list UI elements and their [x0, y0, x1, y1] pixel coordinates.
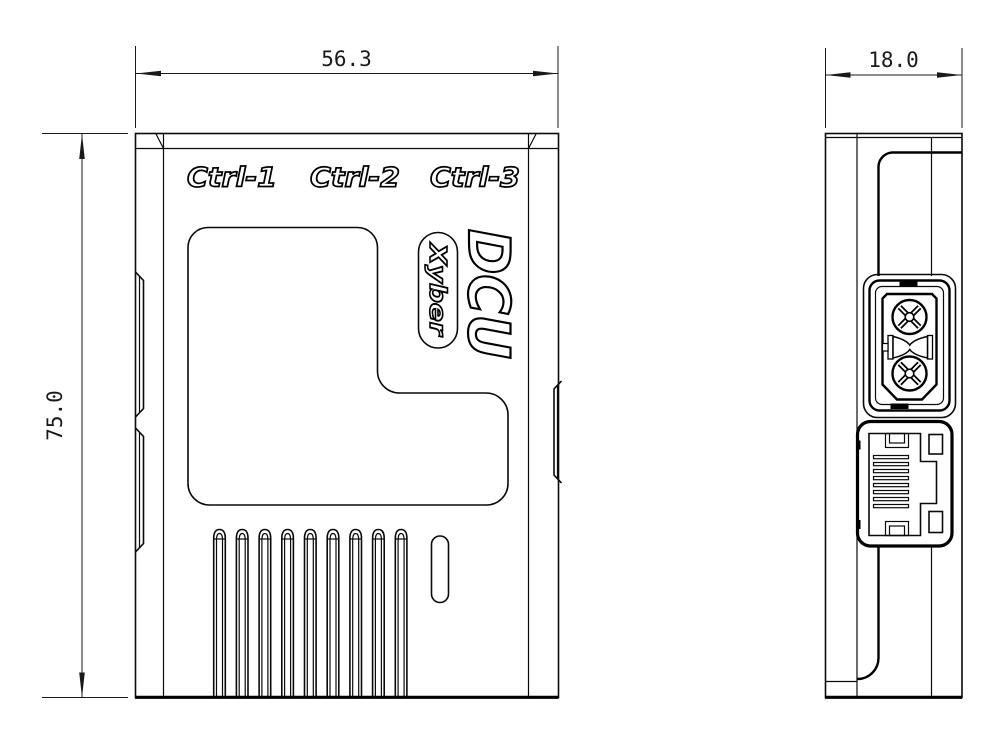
label-ctrl-2: Ctrl-2 [310, 163, 400, 194]
side-view [825, 134, 962, 698]
rj45-jack-outline [869, 434, 937, 536]
vent-slot [373, 530, 385, 698]
front-enclosure-outline [136, 134, 559, 698]
dim-text-height: 75.0 [43, 390, 67, 441]
product-logo-dcu: DCU [455, 229, 521, 359]
dim-arrow-left [136, 71, 161, 77]
vent-slot [395, 530, 407, 698]
rj45-ethernet-port [857, 422, 953, 547]
mounting-slot-oval [432, 536, 449, 603]
port-labels-row: Ctrl-1 Ctrl-2 Ctrl-3 [187, 163, 520, 194]
brand-badge-xyber: Xyber [419, 233, 458, 349]
dim-text-width: 56.3 [321, 47, 372, 71]
front-top-right-chamfer [529, 134, 537, 149]
xt30-top-key-mark [900, 282, 918, 287]
dim-arrow-bottom [79, 673, 85, 698]
dim-arrow-right [937, 72, 962, 78]
rj45-latch-tabs [886, 434, 909, 536]
side-panel-edge-bottom [857, 545, 879, 679]
power-terminal-bottom [893, 357, 927, 391]
side-enclosure-outline [826, 134, 963, 698]
front-view: Ctrl-1 Ctrl-2 Ctrl-3 DCU Xyber [135, 134, 562, 698]
side-panel-edge-top [879, 153, 963, 277]
label-ctrl-3: Ctrl-3 [430, 163, 520, 194]
rj45-left-nub-bottom [857, 520, 861, 529]
rj45-pins [874, 456, 909, 508]
dim-arrow-right [533, 71, 558, 77]
vent-slot [214, 530, 226, 698]
vent-slot [236, 530, 248, 698]
rj45-left-nub-top [857, 441, 861, 450]
label-ctrl-1: Ctrl-1 [187, 163, 277, 194]
dim-text-depth: 18.0 [868, 48, 919, 72]
left-snap-clips [136, 272, 144, 552]
vent-slot [259, 530, 271, 698]
drawing-sheet: Ctrl-1 Ctrl-2 Ctrl-3 DCU Xyber [0, 0, 1000, 737]
xt30-bottom-key-mark [891, 404, 909, 410]
brand-badge-text: Xyber [424, 241, 452, 337]
xt30-power-connector [864, 275, 956, 418]
vent-slot [327, 530, 339, 698]
vent-slot [305, 530, 317, 698]
front-top-left-chamfer [156, 134, 164, 149]
dimension-depth: 18.0 [826, 48, 963, 128]
dimension-height: 75.0 [42, 134, 128, 698]
dim-arrow-top [79, 134, 85, 159]
dim-arrow-left [826, 72, 851, 78]
vent-slot [350, 530, 362, 698]
power-terminal-top [893, 300, 927, 334]
vent-slot [282, 530, 294, 698]
right-snap-clip [554, 381, 562, 483]
vent-slots [214, 530, 407, 698]
dimension-width: 56.3 [136, 46, 559, 128]
